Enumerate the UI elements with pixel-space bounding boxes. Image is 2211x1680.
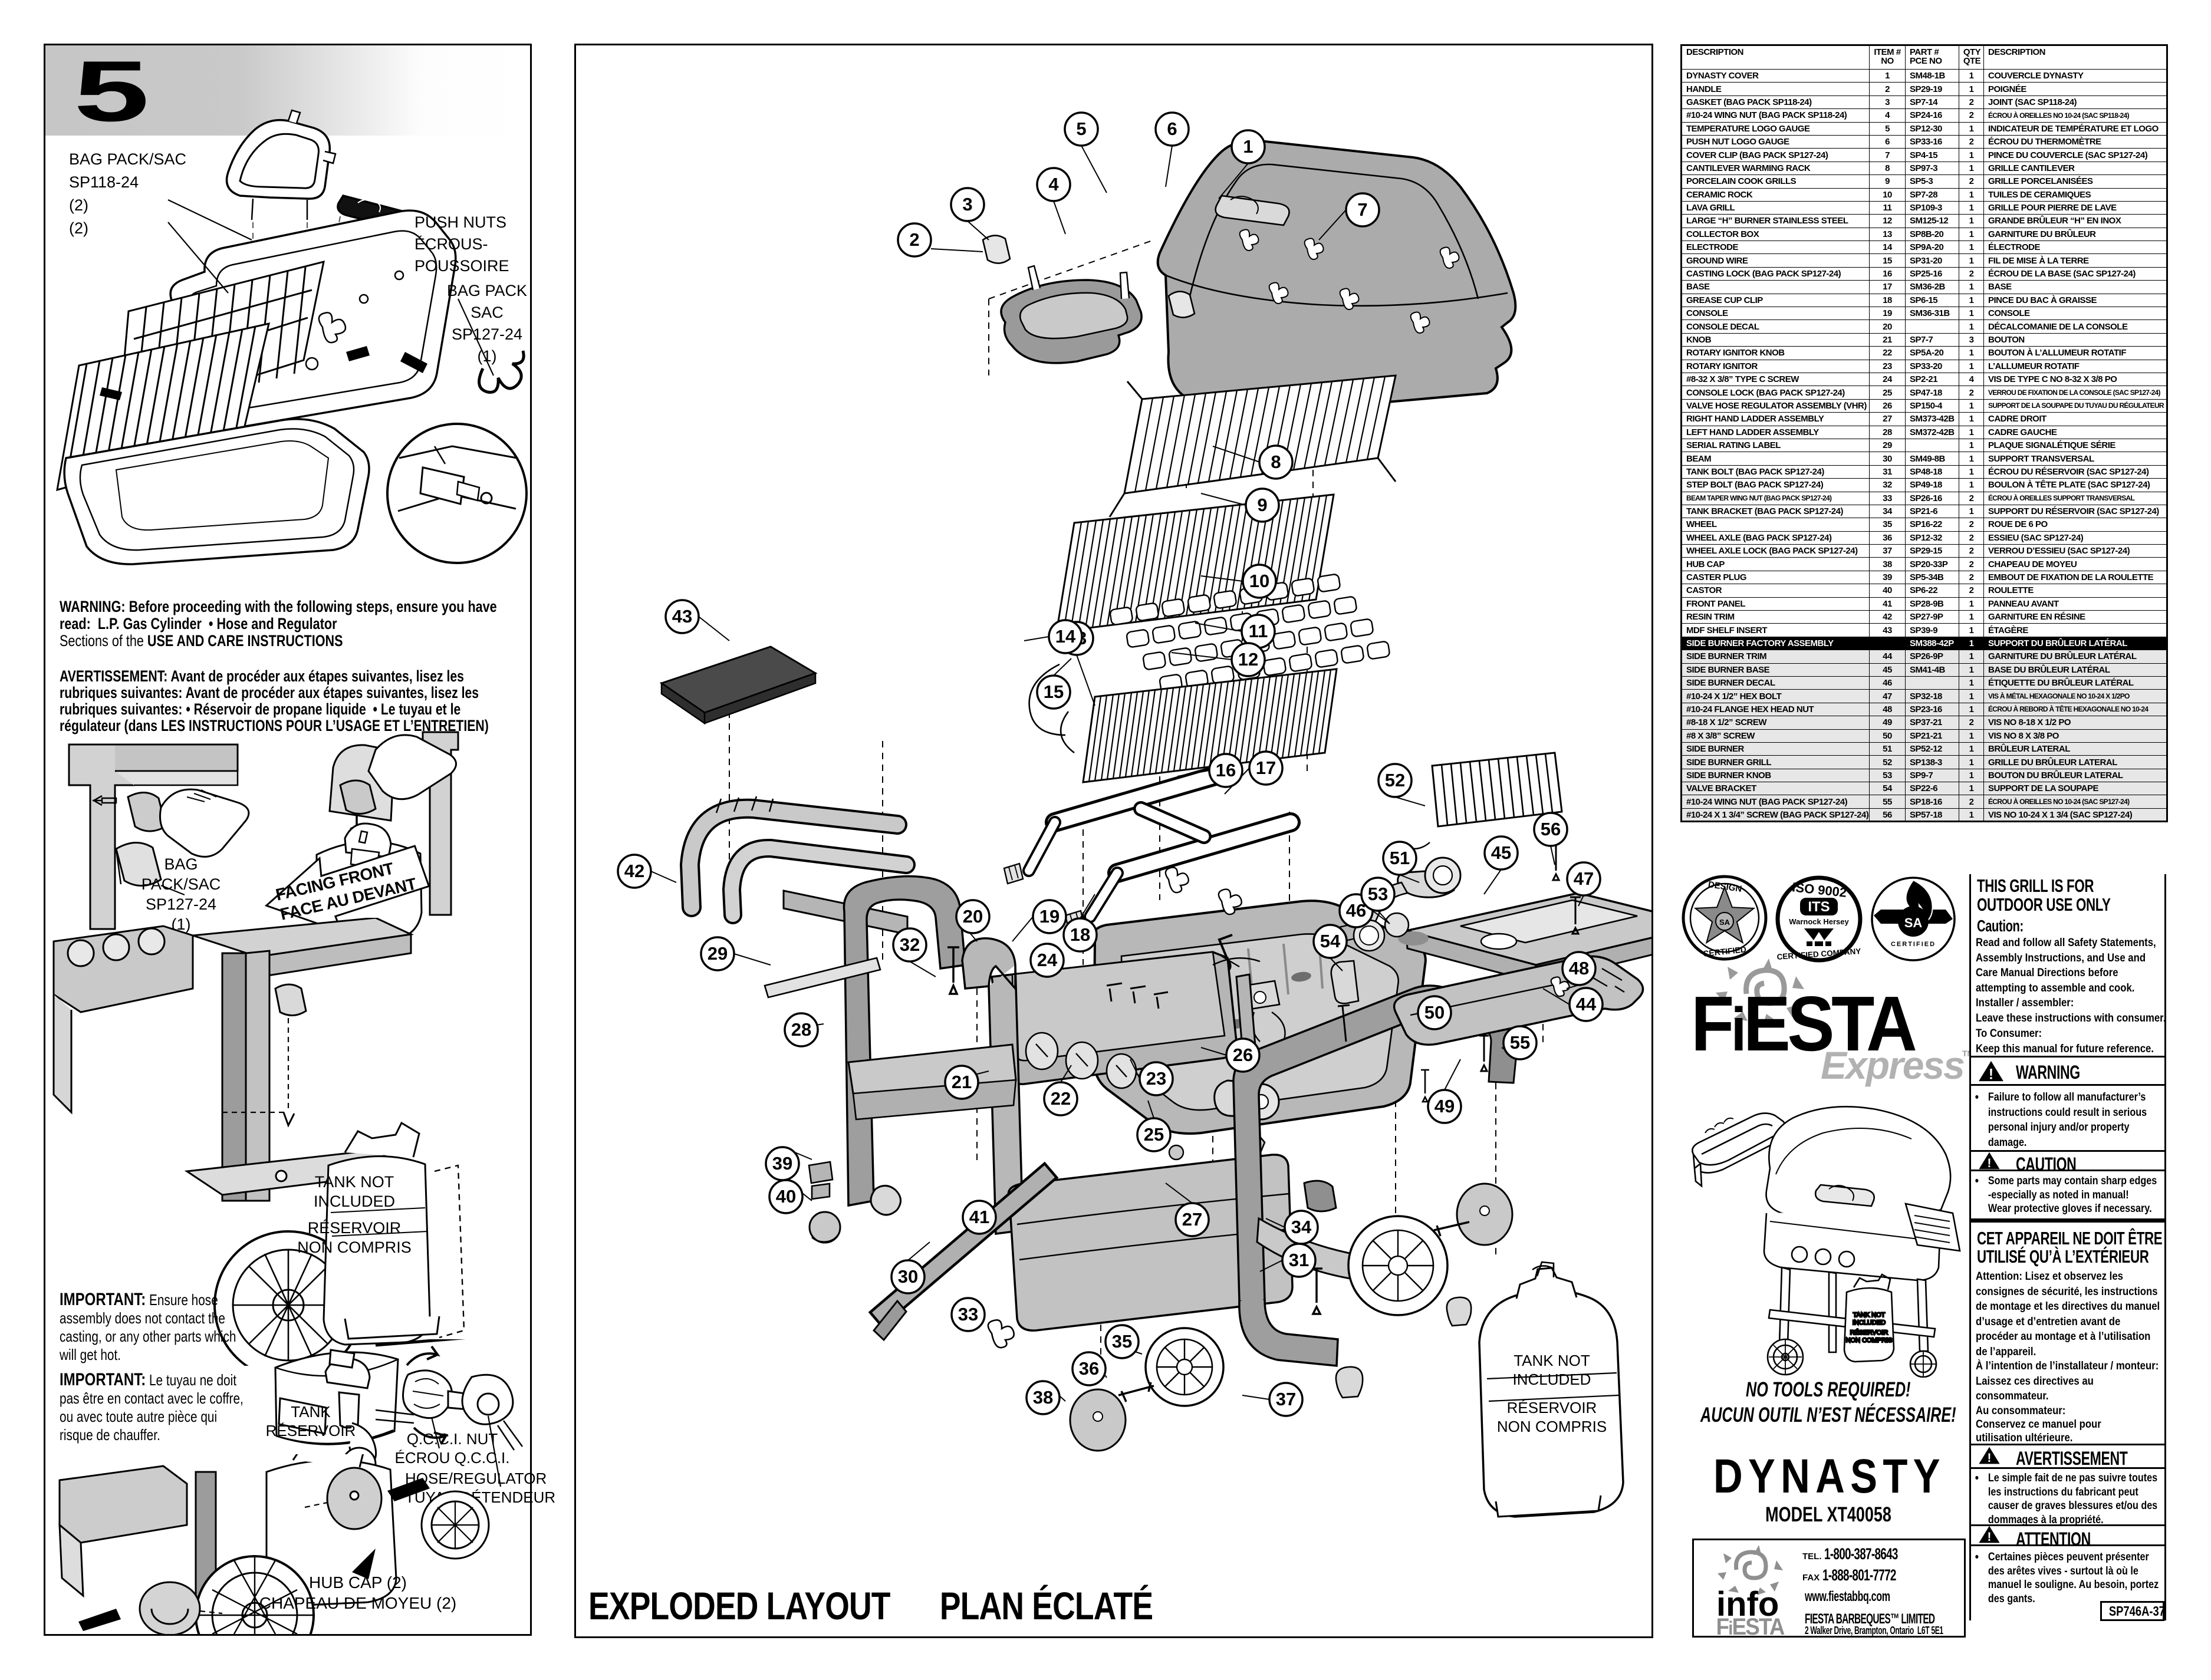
svg-text:19: 19: [1039, 906, 1060, 927]
svg-text:25: 25: [1144, 1124, 1164, 1145]
svg-text:INCLUDED: INCLUDED: [1853, 1319, 1886, 1326]
svg-text:12: 12: [1238, 649, 1258, 670]
svg-text:RÉSERVOIR: RÉSERVOIR: [1507, 1399, 1597, 1417]
svg-text:RÉSERVOIR: RÉSERVOIR: [1850, 1329, 1888, 1336]
svg-text:8: 8: [1271, 452, 1281, 472]
svg-text:22: 22: [1051, 1088, 1071, 1109]
svg-text:45: 45: [1491, 842, 1511, 863]
svg-text:9: 9: [1257, 495, 1267, 515]
svg-text:5: 5: [1076, 118, 1086, 139]
svg-text:SA: SA: [1904, 915, 1923, 930]
svg-text:TANK NOT: TANK NOT: [1853, 1312, 1886, 1319]
svg-text:INCLUDED: INCLUDED: [1513, 1371, 1591, 1388]
svg-text:!: !: [1988, 1157, 1992, 1170]
svg-text:ITS: ITS: [1808, 899, 1830, 915]
svg-text:53: 53: [1368, 884, 1388, 904]
svg-text:35: 35: [1112, 1331, 1132, 1352]
svg-text:21: 21: [952, 1072, 972, 1092]
svg-text:54: 54: [1320, 931, 1341, 951]
svg-text:11: 11: [1249, 621, 1268, 641]
svg-text:6: 6: [1167, 118, 1177, 139]
svg-text:30: 30: [898, 1266, 918, 1287]
svg-text:49: 49: [1434, 1096, 1455, 1116]
svg-text:32: 32: [900, 934, 920, 955]
svg-text:SA: SA: [1719, 918, 1730, 927]
svg-text:47: 47: [1574, 868, 1594, 889]
svg-text:36: 36: [1079, 1358, 1099, 1379]
svg-text:4: 4: [1048, 174, 1059, 195]
svg-text:27: 27: [1182, 1209, 1202, 1230]
svg-text:56: 56: [1541, 819, 1561, 839]
svg-text:33: 33: [958, 1304, 978, 1325]
svg-text:44: 44: [1576, 994, 1597, 1014]
svg-text:26: 26: [1233, 1045, 1253, 1065]
svg-text:TANK NOT: TANK NOT: [1514, 1352, 1590, 1369]
svg-text:34: 34: [1291, 1217, 1312, 1237]
svg-text:7: 7: [1357, 199, 1367, 220]
svg-text:28: 28: [791, 1019, 811, 1040]
svg-text:37: 37: [1276, 1389, 1296, 1409]
svg-text:!: !: [1988, 1530, 1992, 1544]
svg-text:FiESTA: FiESTA: [1716, 1614, 1785, 1637]
svg-text:14: 14: [1055, 626, 1076, 647]
svg-text:!: !: [1989, 1066, 1993, 1082]
svg-text:Warnock Hersey: Warnock Hersey: [1789, 917, 1849, 926]
svg-text:31: 31: [1289, 1250, 1309, 1270]
svg-text:10: 10: [1249, 571, 1269, 591]
svg-text:NON COMPRIS: NON COMPRIS: [1497, 1418, 1607, 1435]
svg-text:20: 20: [963, 906, 983, 927]
svg-text:1: 1: [1243, 136, 1253, 157]
svg-text:39: 39: [772, 1153, 792, 1174]
svg-text:51: 51: [1390, 848, 1410, 868]
svg-text:48: 48: [1569, 958, 1589, 979]
svg-text:42: 42: [624, 861, 644, 881]
svg-text:15: 15: [1044, 681, 1064, 702]
svg-text:17: 17: [1256, 757, 1276, 778]
svg-text:24: 24: [1037, 950, 1058, 970]
svg-text:38: 38: [1033, 1387, 1053, 1408]
svg-text:2: 2: [909, 229, 919, 250]
svg-text:Express: Express: [1821, 1043, 1964, 1087]
svg-text:23: 23: [1146, 1068, 1166, 1089]
svg-text:40: 40: [776, 1186, 796, 1207]
svg-text:3: 3: [962, 194, 972, 215]
svg-text:NON COMPRIS: NON COMPRIS: [1846, 1337, 1893, 1344]
svg-text:29: 29: [708, 943, 728, 964]
svg-text:55: 55: [1510, 1032, 1530, 1053]
svg-text:18: 18: [1070, 924, 1090, 945]
svg-text:50: 50: [1424, 1002, 1445, 1023]
svg-text:52: 52: [1385, 770, 1405, 790]
svg-text:43: 43: [672, 606, 692, 627]
svg-text:CERTIFIED: CERTIFIED: [1891, 941, 1936, 948]
svg-text:16: 16: [1216, 760, 1236, 780]
svg-text:41: 41: [969, 1207, 989, 1227]
